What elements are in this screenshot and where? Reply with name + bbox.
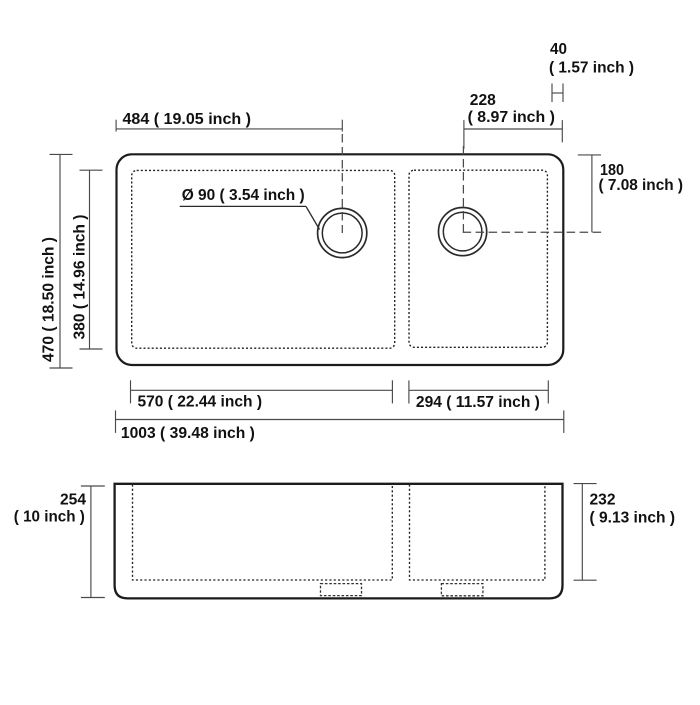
svg-text:( 9.13 inch ): ( 9.13 inch ) [590, 510, 676, 527]
svg-text:470 ( 18.50 inch ): 470 ( 18.50 inch ) [41, 237, 58, 362]
svg-text:( 10 inch ): ( 10 inch ) [14, 509, 85, 526]
svg-text:Ø 90 ( 3.54 inch ): Ø 90 ( 3.54 inch ) [182, 187, 305, 204]
svg-text:294 ( 11.57 inch ): 294 ( 11.57 inch ) [416, 394, 540, 411]
svg-text:( 1.57 inch ): ( 1.57 inch ) [549, 60, 634, 77]
svg-text:232: 232 [590, 491, 616, 508]
svg-text:380 ( 14.96 inch ): 380 ( 14.96 inch ) [72, 215, 89, 340]
svg-text:254: 254 [60, 491, 86, 508]
svg-text:1003 ( 39.48 inch ): 1003 ( 39.48 inch ) [121, 425, 255, 442]
svg-text:484 ( 19.05 inch ): 484 ( 19.05 inch ) [123, 111, 252, 128]
svg-text:40: 40 [550, 41, 567, 58]
svg-text:228: 228 [470, 92, 496, 109]
svg-text:( 8.97 inch ): ( 8.97 inch ) [468, 109, 555, 126]
svg-text:570 ( 22.44 inch ): 570 ( 22.44 inch ) [138, 394, 263, 411]
svg-text:( 7.08 inch ): ( 7.08 inch ) [599, 177, 684, 194]
